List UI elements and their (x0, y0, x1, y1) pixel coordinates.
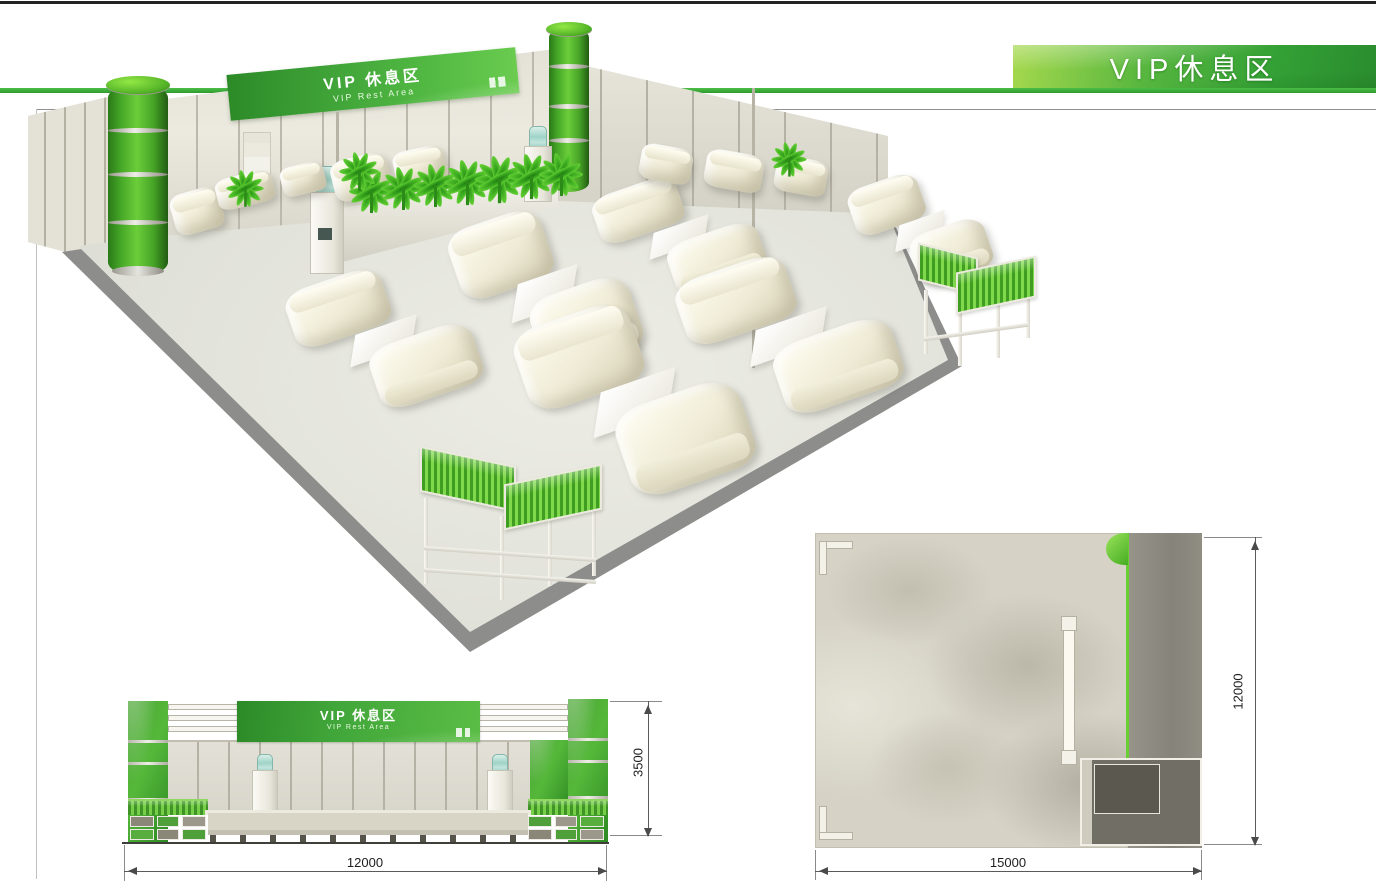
elevation-sign-subtitle: VIP Rest Area (237, 724, 480, 731)
elevation-height-dimension: 3500 (631, 741, 646, 785)
plan-counter-cap (1061, 616, 1077, 631)
elevation-sign-title: VIP 休息区 (237, 705, 480, 724)
plan-storage-wall (1082, 760, 1092, 844)
sign-logo-icon (456, 728, 470, 737)
plan-counter (1063, 630, 1075, 751)
plan-storage-inner (1094, 764, 1160, 814)
fern-plant (771, 141, 808, 178)
cabinet-feet (210, 835, 526, 842)
plan-height-dimension: 12000 (1231, 662, 1246, 722)
counter-cabinets (208, 813, 528, 835)
water-dispenser (252, 754, 276, 815)
back-sofa (278, 159, 328, 199)
elevation-baseline (122, 842, 609, 844)
sofa-group (518, 314, 750, 484)
elevation-width-dimension: 12000 (305, 855, 425, 870)
water-dispenser (487, 754, 511, 815)
hedge-planter (128, 799, 208, 815)
plan-green-wall-line (1126, 533, 1129, 765)
design-board: VIP休息区 VIP 休息区 VIP Rest Area (0, 0, 1376, 886)
fern-plant (538, 151, 584, 197)
back-sofa (637, 142, 694, 186)
fern-plant (338, 150, 379, 191)
plan-width-dimension: 15000 (975, 855, 1041, 870)
plan-counter-cap (1061, 750, 1077, 765)
elevation-sign: VIP 休息区 VIP Rest Area (237, 701, 480, 742)
fern-plant (225, 168, 264, 207)
corner-marker (819, 541, 827, 575)
hedge-planter (528, 799, 608, 815)
sofa-group (288, 278, 480, 398)
corner-marker (819, 832, 853, 840)
